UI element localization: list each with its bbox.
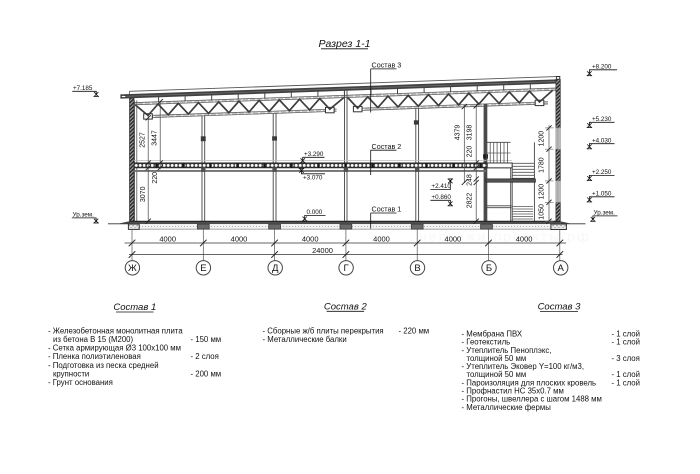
svg-text:Состав 1: Состав 1 [372,205,402,214]
svg-text:4000: 4000 [516,234,533,243]
svg-text:- Металлические балки: - Металлические балки [263,335,347,344]
svg-text:- Грунт основания: - Грунт основания [48,378,113,387]
svg-text:- 200 мм: - 200 мм [191,370,222,379]
svg-text:Ур.зем.: Ур.зем. [594,210,616,217]
svg-text:+7.185: +7.185 [73,85,93,92]
svg-text:220: 220 [152,172,159,184]
svg-text:220: 220 [467,146,474,158]
svg-text:Разрез 1-1: Разрез 1-1 [318,38,370,50]
svg-text:Г: Г [344,263,349,274]
svg-text:4000: 4000 [373,234,390,243]
svg-text:- 1 слой: - 1 слой [612,378,641,387]
svg-text:Б: Б [486,263,492,274]
svg-text:1050: 1050 [539,204,546,220]
svg-text:А: А [558,263,565,274]
svg-text:+1.050: +1.050 [592,190,612,197]
svg-text:Состав 3: Состав 3 [372,61,402,70]
svg-text:+3.070: +3.070 [303,175,323,182]
svg-text:3198: 3198 [467,125,474,141]
svg-text:Ур.зем.: Ур.зем. [73,212,95,219]
svg-text:+2.410: +2.410 [431,183,451,190]
svg-text:24000: 24000 [312,246,333,255]
svg-text:Состав 1: Состав 1 [113,302,156,313]
svg-text:1200: 1200 [539,184,546,200]
svg-text:+8.200: +8.200 [592,63,612,70]
svg-text:4000: 4000 [231,234,248,243]
svg-text:+4.030: +4.030 [592,137,612,144]
svg-text:3447: 3447 [152,130,159,146]
svg-text:0.000: 0.000 [307,209,323,216]
svg-text:+5.230: +5.230 [592,116,612,123]
svg-text:- 3 слоя: - 3 слоя [612,354,640,363]
svg-text:Е: Е [200,263,206,274]
svg-text:Ж: Ж [128,263,137,274]
svg-text:1200: 1200 [539,131,546,147]
svg-text:Д: Д [272,263,279,274]
svg-text:- Металлические фермы: - Металлические фермы [462,403,552,412]
svg-text:248: 248 [467,174,474,186]
svg-text:+0.860: +0.860 [431,194,451,201]
svg-text:- 220 мм: - 220 мм [399,327,430,336]
svg-text:Состав 3: Состав 3 [538,302,582,313]
svg-text:+3.290: +3.290 [304,151,324,158]
svg-text:+2.250: +2.250 [592,169,612,176]
svg-text:- 150 мм: - 150 мм [191,335,222,344]
svg-text:В: В [414,263,420,274]
svg-text:2822: 2822 [467,193,474,209]
svg-text:4000: 4000 [302,234,319,243]
svg-text:из бетона В 15 (М200): из бетона В 15 (М200) [53,335,133,344]
svg-text:крупности: крупности [53,370,89,379]
svg-text:3070: 3070 [140,186,147,202]
svg-text:1780: 1780 [539,157,546,173]
svg-text:2527: 2527 [140,132,147,148]
svg-text:Состав 2: Состав 2 [372,142,402,151]
svg-text:- Пленка полиэтиленовая: - Пленка полиэтиленовая [48,352,141,361]
svg-text:- 2 слоя: - 2 слоя [191,352,219,361]
svg-text:Состав 2: Состав 2 [324,302,368,313]
svg-text:4000: 4000 [445,234,462,243]
svg-text:4379: 4379 [455,125,462,141]
svg-text:- 1 слой: - 1 слой [612,338,641,347]
svg-text:4000: 4000 [159,234,176,243]
